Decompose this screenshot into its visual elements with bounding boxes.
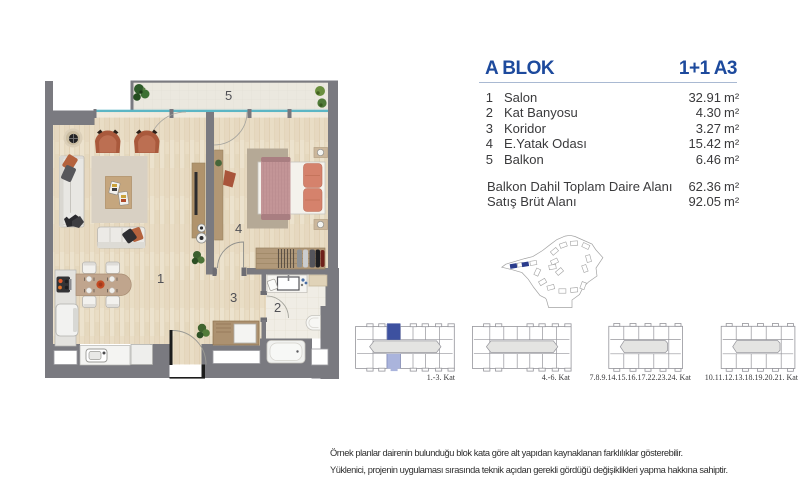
svg-text:1.-3. Kat: 1.-3. Kat (427, 373, 456, 382)
svg-text:2: 2 (274, 300, 281, 315)
svg-text:7.8.9.14.15.16.17.22.23.24. Ka: 7.8.9.14.15.16.17.22.23.24. Kat (589, 373, 691, 382)
svg-text:4.-6. Kat: 4.-6. Kat (542, 373, 571, 382)
svg-text:10.11.12.13.18.19.20.21. Kat: 10.11.12.13.18.19.20.21. Kat (705, 373, 799, 382)
svg-text:1: 1 (157, 271, 164, 286)
svg-text:3: 3 (230, 290, 237, 305)
svg-text:4: 4 (235, 221, 242, 236)
svg-text:5: 5 (225, 88, 232, 103)
